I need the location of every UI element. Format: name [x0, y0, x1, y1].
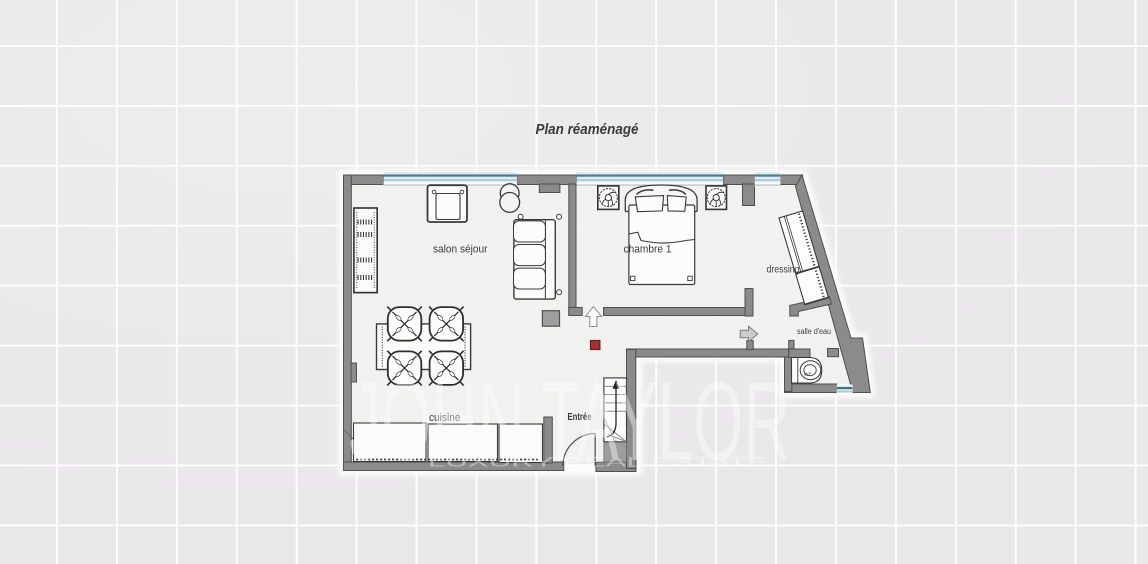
svg-text:Plan réaménagé: Plan réaménagé: [536, 122, 639, 138]
svg-text:salon séjour: salon séjour: [433, 244, 488, 256]
svg-text:salle d'eau: salle d'eau: [797, 327, 831, 336]
svg-text:chambre 1: chambre 1: [624, 244, 672, 256]
svg-text:dressing: dressing: [767, 265, 800, 276]
svg-text:wc: wc: [803, 371, 812, 378]
svg-text:LUXURY REAL ESTATE: LUXURY REAL ESTATE: [428, 455, 768, 470]
